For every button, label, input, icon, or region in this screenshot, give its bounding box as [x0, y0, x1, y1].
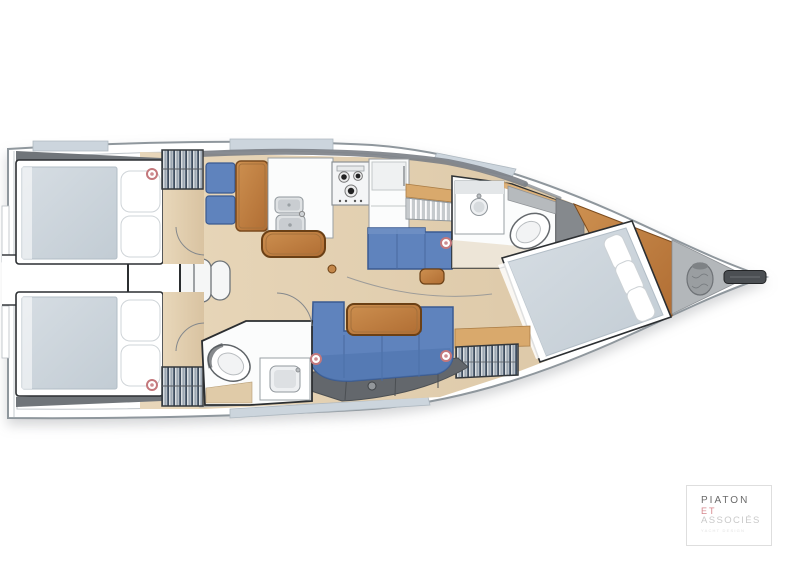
- speaker-marker: [147, 169, 157, 179]
- logo-line-1: PIATON: [701, 495, 771, 506]
- side-table: [420, 269, 444, 284]
- wash-basin-inner: [274, 370, 296, 388]
- deck-hatch-aft-port: [33, 141, 108, 151]
- yacht-floor-plan-page: PIATON ET ASSOCIÉS YACHT DESIGN: [0, 0, 800, 573]
- double-bed-mattress: [22, 167, 117, 259]
- swim-ladder: [2, 206, 9, 262]
- chart-table: [236, 161, 268, 231]
- faucet: [296, 368, 300, 372]
- sink-drain: [288, 223, 292, 227]
- faucet: [477, 194, 481, 198]
- designer-logo: PIATON ET ASSOCIÉS YACHT DESIGN: [686, 485, 772, 546]
- nav-seat-cushion: [206, 163, 235, 193]
- sheet-fold: [22, 167, 32, 259]
- settee-starboard: [311, 302, 453, 381]
- vanity-shelf: [455, 181, 504, 194]
- swim-ladder-2: [2, 306, 9, 358]
- yacht-floor-plan-drawing: [0, 0, 800, 573]
- settee-backrest: [368, 228, 425, 234]
- double-bed-mattress: [22, 297, 117, 389]
- pillow: [121, 300, 160, 341]
- pillow: [121, 216, 160, 257]
- faucet: [299, 211, 304, 216]
- settee-cushions: [368, 228, 452, 269]
- nav-station: [206, 161, 268, 231]
- starboard-hanging-locker: [456, 344, 518, 378]
- sink-drain: [287, 203, 290, 206]
- fridge-lid: [372, 162, 406, 190]
- aft-cabin-port: [16, 150, 204, 264]
- speaker-marker: [441, 351, 451, 361]
- companionway-step-3: [210, 261, 230, 300]
- speaker-marker: [441, 238, 451, 248]
- saloon-table: [347, 304, 421, 335]
- anchor-chain-bag: [687, 263, 713, 296]
- wash-basin-inner: [474, 202, 485, 213]
- speaker-marker: [311, 354, 321, 364]
- locker-latch: [368, 382, 376, 390]
- deck-hatch-mid-port: [230, 139, 333, 150]
- mast-post: [328, 265, 336, 273]
- stove-grill: [337, 166, 364, 171]
- nav-seat-cushion: [206, 196, 235, 224]
- logo-line-3: ASSOCIÉS: [701, 516, 771, 527]
- speaker-marker: [147, 380, 157, 390]
- aft-cabin-starboard: [16, 292, 204, 407]
- sheet-fold: [22, 297, 32, 389]
- galley-island-cabinet: [262, 231, 325, 257]
- logo-tagline: YACHT DESIGN: [701, 529, 771, 533]
